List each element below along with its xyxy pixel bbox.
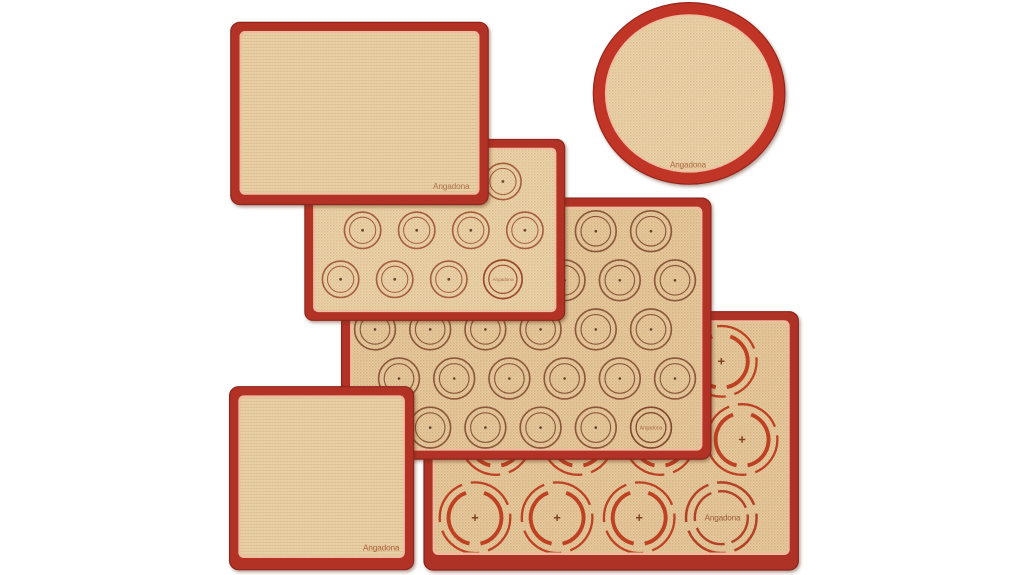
svg-text:Angadona: Angadona	[492, 277, 514, 283]
svg-text:Angadona: Angadona	[640, 426, 663, 432]
svg-text:Angadona: Angadona	[363, 543, 400, 552]
svg-text:Angadona: Angadona	[670, 160, 707, 169]
svg-text:Angadona: Angadona	[433, 182, 470, 191]
svg-text:Angadona: Angadona	[705, 514, 741, 523]
